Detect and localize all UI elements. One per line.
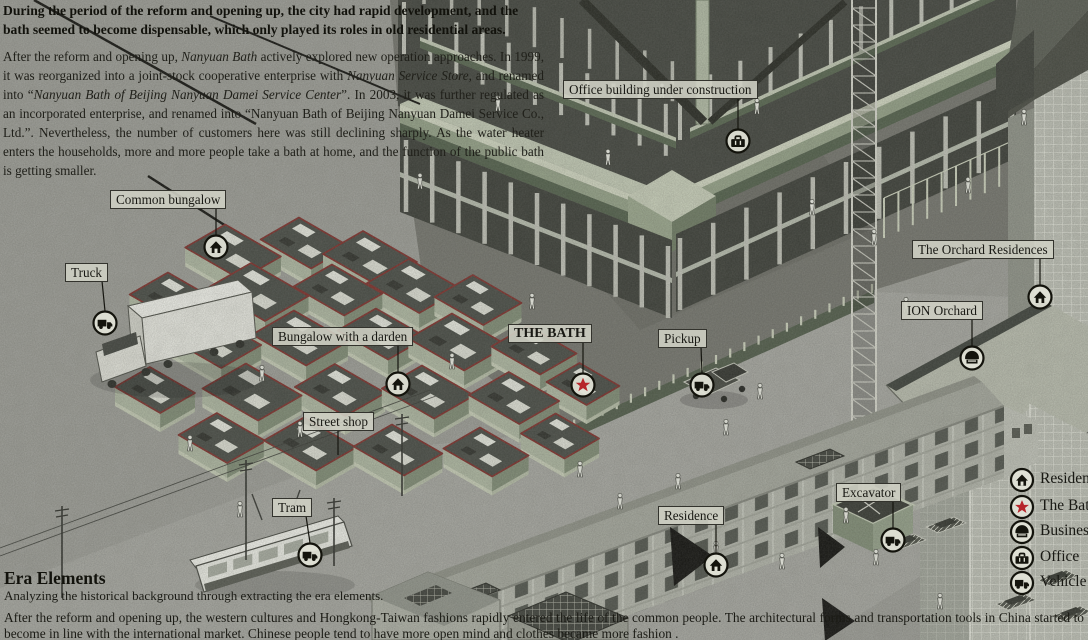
era-elements-axonometric-board: Office building under constructionCommon… [0, 0, 1088, 640]
marker-office-building-office-icon [727, 130, 750, 153]
era-paragraph: After the reform and opening up, the wes… [4, 610, 1084, 640]
marker-bungalow-darden-house-icon [387, 373, 410, 396]
intro-text-block: During the period of the reform and open… [3, 2, 544, 180]
marker-orchard-residences-house-icon [1029, 286, 1052, 309]
intro-paragraph: After the reform and opening up, Nanyuan… [3, 47, 544, 180]
legend-house-icon [1011, 469, 1033, 491]
legend-office-icon [1011, 547, 1033, 569]
era-elements-block: Era Elements Analyzing the historical ba… [4, 569, 1084, 640]
marker-common-bungalow-house-icon [205, 236, 228, 259]
marker-ion-orchard-business-icon [961, 347, 984, 370]
era-title: Era Elements [4, 569, 1084, 587]
marker-tram-vehicle-icon [299, 544, 322, 567]
intro-heading: During the period of the reform and open… [3, 2, 544, 40]
marker-pickup-vehicle-icon [691, 374, 714, 397]
legend-bath-icon [1011, 496, 1033, 518]
marker-the-bath-bath-icon [572, 374, 595, 397]
marker-excavator-vehicle-icon [882, 529, 905, 552]
legend-business-icon [1011, 521, 1033, 543]
era-subtitle: Analyzing the historical background thro… [4, 588, 1084, 604]
marker-truck-vehicle-icon [94, 312, 117, 335]
